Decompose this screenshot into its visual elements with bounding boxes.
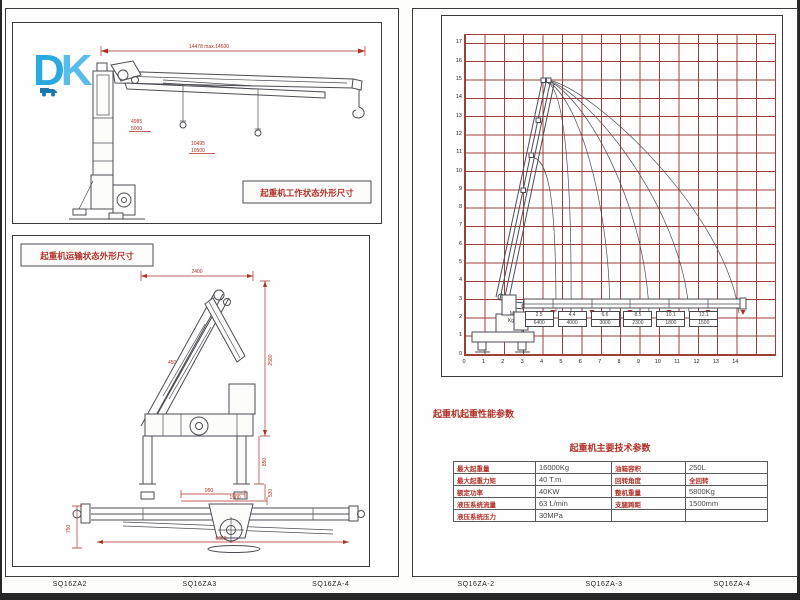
load-box: 12.11500: [689, 311, 718, 327]
spec-label-cell: 整机重量: [612, 486, 686, 498]
dim-transport-pad: 530: [268, 489, 274, 498]
dim-outrigger-span: 6600: [215, 536, 226, 542]
model-code-label: SQ16ZA-4: [312, 581, 349, 588]
load-unit: Kg: [500, 318, 514, 325]
load-capacity: 6400: [526, 319, 553, 327]
left-footer-labels: SQ16ZA2SQ16ZA3SQ16ZA-4: [5, 577, 397, 591]
transport-drawing-box: 起重机运输状态外形尺寸 2400 450: [12, 235, 370, 567]
transport-drawing-title: 起重机运输状态外形尺寸: [39, 251, 134, 261]
spec-value-cell: 30MPa: [536, 510, 612, 522]
dim-mid-1: 4985: [131, 119, 142, 125]
dim-mid-1b: 5000: [131, 126, 142, 132]
spec-value-cell: 63 L/min: [536, 498, 612, 510]
bottom-bar: [0, 593, 800, 600]
load-capacity: 1500: [690, 319, 717, 327]
dim-outrigger-a: 950: [205, 488, 214, 494]
dim-mid-2: 10495: [191, 141, 205, 147]
model-code-label: SQ16ZA-3: [585, 581, 622, 588]
dim-transport-mid: 450: [168, 360, 177, 366]
spec-value-cell: 40 T.m: [536, 474, 612, 486]
right-sheet-panel: 17161514131211109876543210 0123456789101…: [412, 8, 798, 577]
spec-label-cell: 额定功率: [454, 486, 536, 498]
load-box: 8.52300: [623, 311, 652, 327]
model-code-label: SQ16ZA3: [182, 581, 216, 588]
drawing-sheet: 14478 max.14500 4985: [0, 0, 800, 600]
load-capacity: 3000: [592, 319, 619, 327]
dim-transport-height: 2580: [268, 354, 274, 365]
model-code-label: SQ16ZA-2: [457, 581, 494, 588]
truck-icon: [40, 86, 60, 97]
dim-transport-leg: 850: [262, 458, 268, 467]
logo-letter-k: K: [61, 46, 89, 95]
spec-value-cell: 全回转: [686, 474, 768, 486]
load-capacity: 1800: [657, 319, 684, 327]
spec-table-wrap: 最大起重量16000Kg油箱容积250L最大起重力矩40 T.m回转角度全回转额…: [453, 461, 768, 522]
spec-label-cell: 最大起重量: [454, 462, 536, 474]
load-unit-labels: MKg: [500, 311, 514, 324]
spec-label-cell: 油箱容积: [612, 462, 686, 474]
spec-value-cell: 5800Kg: [686, 486, 768, 498]
load-box: 10.11800: [656, 311, 685, 327]
model-code-label: SQ16ZA-4: [713, 581, 750, 588]
spec-label-cell: 支腿跨距: [612, 498, 686, 510]
spec-label-cell: 回转角度: [612, 474, 686, 486]
load-box: 2.56400: [525, 311, 554, 327]
spec-value-cell: 40KW: [536, 486, 612, 498]
load-chart-box: 17161514131211109876543210 0123456789101…: [441, 15, 783, 377]
spec-value-cell: [686, 510, 768, 522]
working-drawing-title: 起重机工作状态外形尺寸: [259, 188, 354, 198]
spec-value-cell: 250L: [686, 462, 768, 474]
dim-outrigger-b: 1900: [229, 495, 240, 501]
load-box: 4.44000: [558, 311, 587, 327]
spec-label-cell: 液压系统压力: [454, 510, 536, 522]
spec-table-title: 起重机主要技术参数: [453, 441, 767, 454]
left-edge-bar: [0, 0, 2, 600]
load-capacity: 2300: [624, 319, 651, 327]
load-box: 6.63000: [591, 311, 620, 327]
dim-outrigger-side: 750: [66, 525, 72, 534]
working-drawing-box: 14478 max.14500 4985: [12, 22, 382, 224]
spec-value-cell: [612, 510, 686, 522]
left-sheet-panel: 14478 max.14500 4985: [5, 8, 399, 577]
dim-total-length: 14478 max.14500: [189, 44, 229, 50]
spec-table: 最大起重量16000Kg油箱容积250L最大起重力矩40 T.m回转角度全回转额…: [453, 461, 768, 522]
crane-transport-drawing: 起重机运输状态外形尺寸 2400 450: [13, 236, 369, 566]
spec-value-cell: 16000Kg: [536, 462, 612, 474]
dim-transport-width: 2400: [191, 269, 202, 275]
right-footer-labels: SQ16ZA-2SQ16ZA-3SQ16ZA-4: [412, 577, 796, 591]
spec-label-cell: 液压系统流量: [454, 498, 536, 510]
spec-value-cell: 1500mm: [686, 498, 768, 510]
dim-mid-2b: 10500: [191, 148, 205, 154]
model-code-label: SQ16ZA2: [53, 581, 87, 588]
load-capacity: 4000: [559, 319, 586, 327]
performance-title: 起重机起重性能参数: [433, 407, 514, 420]
spec-label-cell: 最大起重力矩: [454, 474, 536, 486]
